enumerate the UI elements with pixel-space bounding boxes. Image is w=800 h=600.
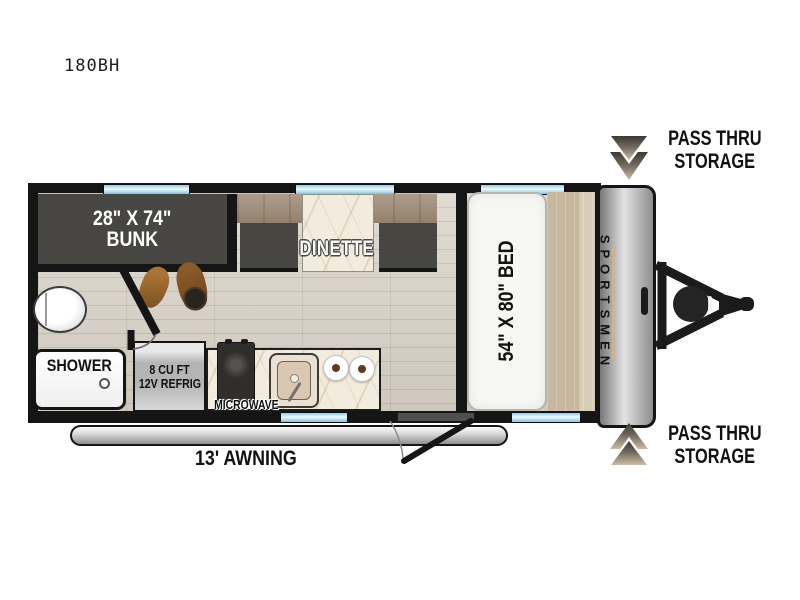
awning-label-text: 13' AWNING xyxy=(195,447,297,471)
stove-burner xyxy=(223,352,249,378)
bunk-name-label: BUNK xyxy=(107,229,159,250)
coffee-cup xyxy=(323,355,349,381)
shower-pan: SHOWER xyxy=(33,349,126,410)
awning-label: 13' AWNING xyxy=(148,447,343,471)
pass-thru-storage-top-label: PASS THRU STORAGE xyxy=(640,128,790,174)
refrigerator-label-line1: 8 CU FT xyxy=(149,363,189,377)
model-label: 180BH xyxy=(64,56,120,76)
dinette-table xyxy=(302,194,374,272)
window-bed-bottom xyxy=(511,412,581,423)
bed-platform xyxy=(547,192,595,411)
hitch-coupler-cone xyxy=(719,293,741,317)
hitch-coupler xyxy=(739,297,754,311)
kitchen-sink xyxy=(269,353,319,408)
pass-thru-line2: STORAGE xyxy=(675,446,756,467)
shower-drain xyxy=(99,378,110,389)
stove-knob xyxy=(225,339,232,344)
pass-thru-storage-bottom-label: PASS THRU STORAGE xyxy=(640,423,790,469)
a-frame-bottom-bar xyxy=(656,313,722,346)
toilet xyxy=(33,286,87,333)
front-cap-logo-mark xyxy=(641,287,648,315)
refrigerator-label-line2: 12V REFRIG xyxy=(138,377,200,391)
stove-knob xyxy=(241,339,248,344)
bed-mattress xyxy=(467,192,547,411)
pass-thru-line1: PASS THRU xyxy=(668,423,761,444)
pass-thru-line1: PASS THRU xyxy=(668,128,761,149)
coffee-cup xyxy=(349,356,375,382)
toilet-seam xyxy=(45,293,47,326)
coffee xyxy=(356,363,368,375)
floorplan-canvas: 180BH SPORTSMEN 28" X 74" BUNK DINETTE S… xyxy=(0,0,800,600)
coffee xyxy=(330,362,342,374)
sink-drain xyxy=(290,374,299,383)
refrigerator: 8 CU FT 12V REFRIG xyxy=(133,341,206,412)
bunk-area: 28" X 74" BUNK xyxy=(38,194,237,272)
propane-tank xyxy=(673,286,709,322)
bunk-size-label: 28" X 74" xyxy=(93,208,171,229)
hitch-assembly xyxy=(656,262,754,349)
bedroom-wall xyxy=(456,193,467,411)
entry-door xyxy=(397,412,475,422)
propane-tank-highlight xyxy=(708,296,712,312)
stove xyxy=(217,342,255,402)
window-kitchen xyxy=(280,412,348,423)
dinette-seat-left xyxy=(240,223,298,272)
pass-thru-line2: STORAGE xyxy=(675,151,756,172)
dinette-seat-right xyxy=(379,223,437,272)
a-frame-top-bar xyxy=(656,265,722,298)
awning-tube xyxy=(70,425,508,446)
front-cap-accent-line xyxy=(612,248,615,360)
